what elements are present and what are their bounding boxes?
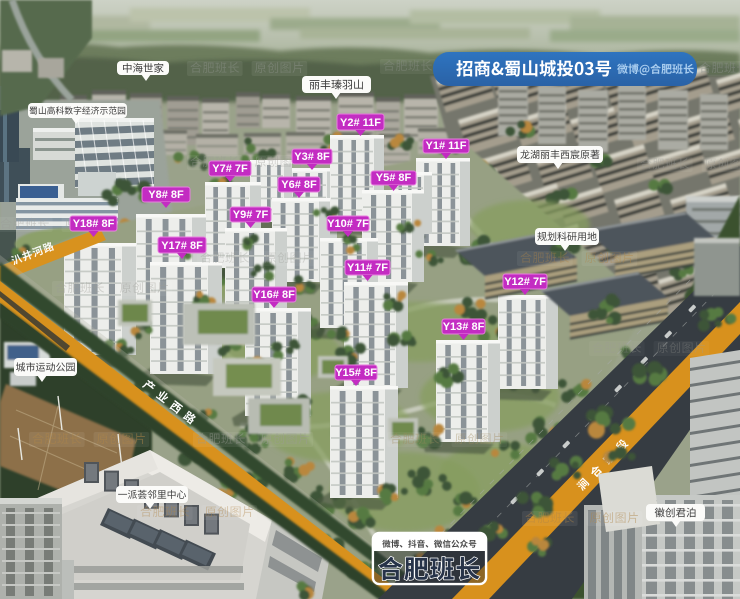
svg-text:Y2# 11F: Y2# 11F — [340, 117, 381, 129]
svg-text:Y1# 11F: Y1# 11F — [426, 140, 467, 152]
svg-text:Y6# 8F: Y6# 8F — [281, 179, 317, 191]
svg-text:Y18# 8F: Y18# 8F — [73, 218, 115, 230]
svg-text:Y16# 8F: Y16# 8F — [253, 289, 295, 301]
svg-text:Y10# 7F: Y10# 7F — [327, 218, 369, 230]
svg-text:Y13# 8F: Y13# 8F — [443, 321, 485, 333]
svg-text:Y17# 8F: Y17# 8F — [161, 240, 203, 252]
svg-text:Y3# 8F: Y3# 8F — [294, 151, 330, 163]
svg-text:Y9# 7F: Y9# 7F — [233, 209, 269, 221]
svg-text:Y5# 8F: Y5# 8F — [376, 172, 412, 184]
svg-text:Y8# 8F: Y8# 8F — [148, 189, 184, 201]
svg-text:Y12# 7F: Y12# 7F — [504, 276, 546, 288]
svg-text:Y15# 8F: Y15# 8F — [335, 367, 377, 379]
svg-text:Y7# 7F: Y7# 7F — [212, 163, 248, 175]
svg-text:Y11# 7F: Y11# 7F — [347, 262, 388, 274]
